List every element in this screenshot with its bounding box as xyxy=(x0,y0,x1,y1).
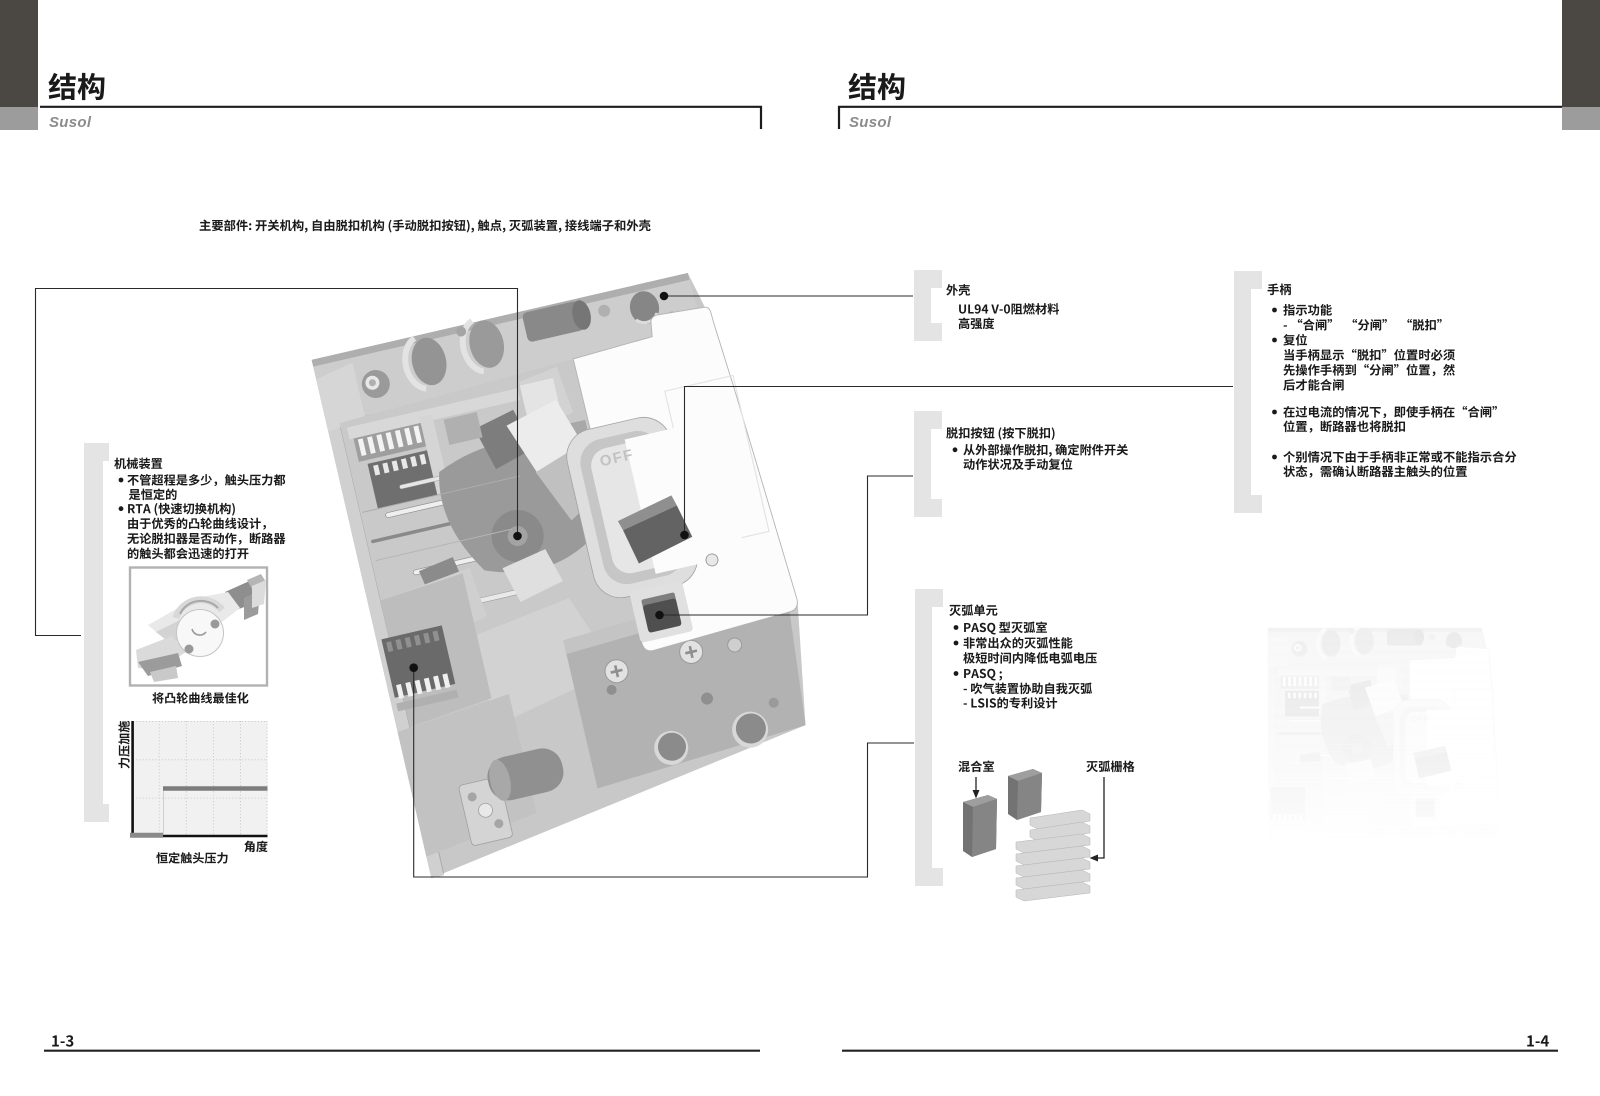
svg-text:Susol: Susol xyxy=(49,114,92,131)
svg-text:Susol: Susol xyxy=(849,114,892,131)
